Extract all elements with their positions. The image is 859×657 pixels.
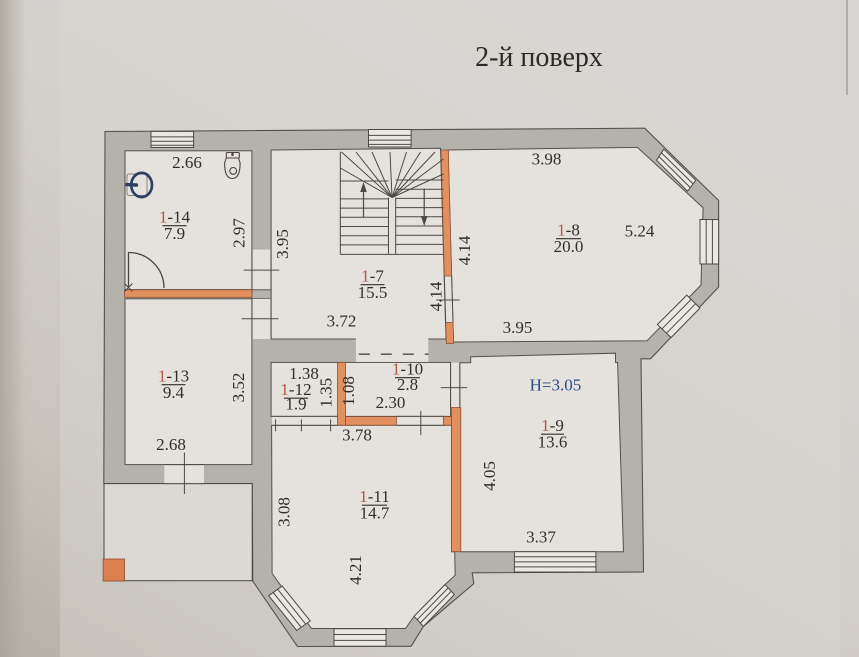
svg-text:14.7: 14.7 bbox=[360, 504, 390, 523]
svg-text:5.24: 5.24 bbox=[625, 222, 655, 241]
svg-text:3.95: 3.95 bbox=[273, 229, 292, 259]
svg-text:4.14: 4.14 bbox=[455, 235, 474, 265]
svg-text:7.9: 7.9 bbox=[164, 224, 185, 243]
svg-text:1.08: 1.08 bbox=[339, 376, 358, 406]
svg-text:20.0: 20.0 bbox=[554, 237, 584, 256]
svg-text:3.72: 3.72 bbox=[327, 311, 357, 330]
svg-text:2-й поверх: 2-й поверх bbox=[475, 42, 603, 73]
svg-text:3.95: 3.95 bbox=[503, 318, 533, 337]
svg-text:4.21: 4.21 bbox=[346, 555, 365, 585]
svg-text:3.78: 3.78 bbox=[342, 426, 372, 445]
svg-text:1.9: 1.9 bbox=[285, 395, 306, 414]
svg-text:H=3.05: H=3.05 bbox=[530, 376, 582, 395]
svg-text:1.35: 1.35 bbox=[316, 378, 335, 408]
svg-text:3.52: 3.52 bbox=[229, 373, 248, 403]
svg-text:9.4: 9.4 bbox=[163, 383, 185, 402]
svg-text:2.97: 2.97 bbox=[230, 218, 249, 248]
svg-text:2.8: 2.8 bbox=[397, 375, 418, 394]
svg-text:4.05: 4.05 bbox=[480, 461, 499, 491]
svg-text:2.68: 2.68 bbox=[156, 435, 186, 454]
svg-text:2.30: 2.30 bbox=[376, 393, 406, 412]
svg-text:2.66: 2.66 bbox=[172, 153, 202, 172]
svg-text:4.14: 4.14 bbox=[427, 281, 446, 311]
svg-text:3.37: 3.37 bbox=[526, 527, 556, 546]
svg-text:13.6: 13.6 bbox=[538, 433, 568, 452]
svg-text:15.5: 15.5 bbox=[358, 283, 388, 302]
svg-text:3.98: 3.98 bbox=[532, 150, 562, 169]
svg-text:3.08: 3.08 bbox=[275, 497, 294, 527]
